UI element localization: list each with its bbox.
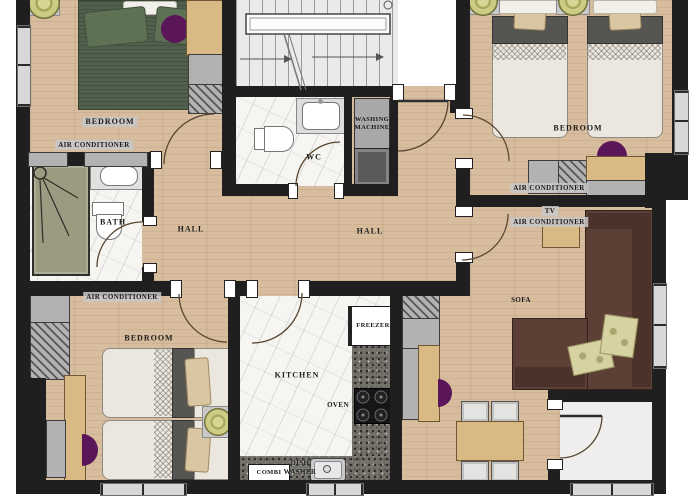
bed-blanket-band <box>492 42 566 60</box>
dishwasher-label-1: DISH <box>291 459 310 467</box>
combi-label: COMBI <box>257 469 282 477</box>
door-jamb <box>455 252 473 263</box>
window <box>653 283 667 369</box>
cabinet <box>586 180 654 196</box>
dryer <box>354 148 390 186</box>
room-label-bedroom-bl: BEDROOM <box>124 334 173 343</box>
ac-unit <box>84 152 148 167</box>
room-label-bedroom-tr: BEDROOM <box>553 124 602 133</box>
ac-label-tr: AIR CONDITIONER <box>510 183 588 193</box>
sofa-label: SOFA <box>511 296 531 304</box>
door-jamb <box>143 263 157 273</box>
door-jamb <box>170 280 182 298</box>
wall <box>142 160 154 222</box>
dining-chair <box>461 461 489 482</box>
tv-unit <box>542 224 580 248</box>
wall <box>390 92 398 196</box>
door-jamb <box>210 151 222 169</box>
dining-chair <box>461 401 489 422</box>
door-jamb <box>547 459 563 470</box>
window <box>100 483 187 496</box>
door-jamb <box>224 280 236 298</box>
door-jamb <box>143 216 157 226</box>
sofa-backrest <box>632 213 651 387</box>
door-jamb <box>288 183 298 199</box>
wall <box>344 86 352 196</box>
door-jamb <box>150 151 162 169</box>
exterior <box>666 200 700 500</box>
window <box>570 483 654 496</box>
wall <box>548 390 658 402</box>
wall <box>338 184 398 196</box>
room-label-bath: BATH <box>100 218 126 227</box>
bed-blanket-band <box>154 420 172 478</box>
wall <box>228 281 240 494</box>
room-label-wc: WC <box>306 153 322 162</box>
ac-label-tl: AIR CONDITIONER <box>55 140 133 150</box>
wall <box>222 184 294 196</box>
bed-pillow <box>83 6 148 48</box>
dining-table <box>456 421 524 461</box>
sofa-armrest <box>588 213 632 229</box>
door-jamb <box>298 280 310 298</box>
door-jamb <box>392 84 404 101</box>
cabinet <box>46 420 66 478</box>
window <box>674 90 689 155</box>
balcony-floor <box>560 402 652 480</box>
cabinet <box>30 292 70 324</box>
wardrobe-hanging <box>30 322 70 380</box>
cabinet <box>188 54 224 86</box>
door-jamb <box>455 108 473 119</box>
door-jamb <box>444 84 456 101</box>
floor-plan: WASHING MACHINE <box>0 0 700 500</box>
wall <box>30 378 46 482</box>
door-jamb <box>455 206 473 217</box>
wardrobe <box>186 0 224 56</box>
kitchen-sink-basin <box>314 461 342 479</box>
sofa-pillow <box>599 314 638 358</box>
shelf-unit <box>418 345 440 422</box>
door-jamb <box>547 399 563 410</box>
ac-label-living: AIR CONDITIONER <box>510 217 588 227</box>
shower-tray <box>32 164 90 276</box>
oven-label: OVEN <box>327 401 349 409</box>
bed-blanket-band <box>154 348 172 416</box>
door-jamb <box>455 158 473 169</box>
wall <box>302 281 470 296</box>
room-label-kitchen: KITCHEN <box>275 371 320 380</box>
window <box>17 25 31 107</box>
room-label-bedroom-tl: BEDROOM <box>82 117 137 127</box>
bed-blanket-band <box>587 42 661 60</box>
cooktop <box>354 388 392 424</box>
washing-machine-label-2: MACHINE <box>355 124 390 132</box>
bed-pillow <box>184 357 211 407</box>
door-jamb <box>246 280 258 298</box>
room-label-hall-left: HALL <box>178 225 205 234</box>
dining-chair <box>491 401 519 422</box>
bed-pillow <box>498 0 562 14</box>
single-bed <box>585 0 663 138</box>
staircase <box>236 0 398 90</box>
wc-sink <box>302 102 340 130</box>
wardrobe-hanging <box>188 84 224 114</box>
freezer-label: FREEZER <box>356 322 390 330</box>
ac-label-bl: AIR CONDITIONER <box>83 292 161 302</box>
door-jamb <box>334 183 344 199</box>
ac-unit <box>28 152 68 167</box>
freezer: FREEZER <box>348 306 395 346</box>
pouf <box>161 15 189 43</box>
stair-landing-void <box>398 0 456 86</box>
wall <box>456 0 470 118</box>
exterior <box>0 0 16 500</box>
single-bed <box>490 0 568 138</box>
washing-machine-label-1: WASHING <box>355 116 389 124</box>
dining-chair <box>491 461 519 482</box>
window <box>306 483 364 496</box>
bed-pillow <box>593 0 657 14</box>
wall <box>222 0 236 196</box>
wall <box>390 281 402 494</box>
tv-label: TV <box>542 206 559 216</box>
wall <box>236 86 398 97</box>
washing-machine: WASHING MACHINE <box>354 98 390 150</box>
toilet <box>264 126 294 152</box>
bath-sink <box>100 166 138 186</box>
dishwasher-label-2: WASHER <box>284 468 317 476</box>
faucet <box>318 99 323 104</box>
room-label-hall-main: HALL <box>357 227 384 236</box>
